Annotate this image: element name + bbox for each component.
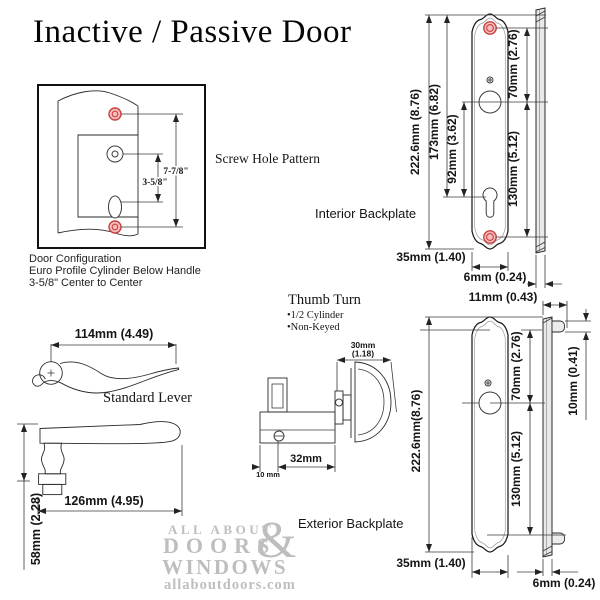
thumb-turn-diagram: 30mm (1.18) 32mm 10 mm	[252, 340, 397, 479]
exterior-width-dim: 35mm (1.40)	[396, 556, 465, 570]
center-screw-inner	[112, 151, 118, 157]
interior-side-view	[536, 8, 545, 253]
lever-height-dim: 58mm (2.28)	[29, 493, 43, 565]
thumb-turn-bullet-2: •Non-Keyed	[287, 322, 340, 333]
door-config-line-2: Euro Profile Cylinder Below Handle	[29, 265, 201, 277]
door-config-line-3: 3-5/8" Center to Center	[29, 277, 201, 289]
cylinder-length-dim: 32mm	[290, 453, 322, 465]
interior-screw-to-handle-dim: 70mm (2.76)	[506, 29, 520, 98]
cylinder-oval-hole	[109, 196, 122, 218]
interior-handle-to-cyl-dim: 92mm (3.62)	[445, 114, 459, 183]
interior-bottom-screw	[484, 231, 496, 243]
lever-side-view: 126mm (4.95) 58mm (2.28)	[17, 421, 182, 570]
interior-handle-to-screw-dim: 130mm (5.12)	[506, 131, 520, 207]
cylinder-body	[260, 412, 335, 443]
exterior-backplate-diagram: 11mm (0.43) 222.6mm(8.76) 70mm (2.76) 13…	[396, 290, 595, 590]
thumb-turn-title: Thumb Turn	[288, 292, 362, 308]
interior-top-to-cyl-dim: 173mm (6.82)	[427, 84, 441, 160]
turn-neck-1	[335, 391, 343, 424]
watermark-url: allaboutdoors.com	[164, 577, 296, 594]
lever-base	[43, 484, 62, 494]
bottom-screw-hole	[109, 221, 121, 233]
lever-collar	[39, 474, 66, 485]
exterior-top-boss	[552, 321, 565, 332]
cylinder-offset-dim: 10 mm	[256, 470, 280, 479]
exterior-screw-to-handle-dim: 70mm (2.76)	[509, 331, 523, 400]
lever-top-view: 114mm (4.49)	[33, 327, 179, 393]
dim-7-7-8: 7-7/8"	[163, 167, 188, 177]
neck-screw	[336, 399, 343, 406]
exterior-handle-to-screw-dim: 130mm (5.12)	[509, 431, 523, 507]
interior-backplate-diagram: 222.6mm (8.76) 173mm (6.82) 92mm (3.62) …	[396, 8, 562, 288]
dim-3-5-8: 3-5/8"	[142, 178, 167, 188]
exterior-height-dim: 222.6mm(8.76)	[409, 390, 423, 473]
turn-neck-2	[343, 395, 351, 420]
knob-width-dim-line2: (1.18)	[352, 349, 374, 359]
screw-hole-pattern-diagram: 7-7/8" 3-5/8"	[38, 85, 205, 248]
exterior-thickness-dim: 6mm (0.24)	[533, 576, 596, 590]
door-configuration-note: Door Configuration Euro Profile Cylinder…	[29, 253, 201, 289]
screw-hole-pattern-label: Screw Hole Pattern	[215, 151, 320, 166]
lever-top-length-dim: 114mm (4.49)	[75, 327, 154, 341]
exterior-backplate-label: Exterior Backplate	[298, 516, 404, 531]
lever-neck	[41, 443, 64, 474]
interior-thickness-dim: 6mm (0.24)	[464, 270, 527, 284]
line-art: 7-7/8" 3-5/8" Screw Hole Pattern	[0, 0, 600, 600]
interior-top-screw	[484, 22, 496, 34]
exterior-plate	[472, 317, 508, 552]
lever-top-blade	[33, 362, 179, 393]
interior-backplate-label: Interior Backplate	[315, 206, 416, 221]
interior-width-dim: 35mm (1.40)	[396, 250, 465, 264]
door-config-line-1: Door Configuration	[29, 253, 201, 265]
thumb-turn-bullet-1: •1/2 Cylinder	[287, 310, 344, 321]
page-title: Inactive / Passive Door	[33, 14, 352, 51]
exterior-boss-dim: 10mm (0.41)	[566, 346, 580, 415]
exterior-total-thickness-dim: 11mm (0.43)	[469, 290, 538, 304]
exterior-side-view	[543, 317, 552, 557]
interior-height-dim: 222.6mm (8.76)	[408, 89, 422, 175]
thumb-knob	[355, 362, 391, 442]
spec-sheet: 7-7/8" 3-5/8" Screw Hole Pattern	[0, 0, 600, 600]
lever-side-blade	[40, 421, 180, 443]
lever-side-length-dim: 126mm (4.95)	[64, 494, 143, 508]
cylinder-tab	[268, 378, 287, 412]
top-screw-hole	[109, 108, 121, 120]
standard-lever-label: Standard Lever	[103, 390, 192, 406]
